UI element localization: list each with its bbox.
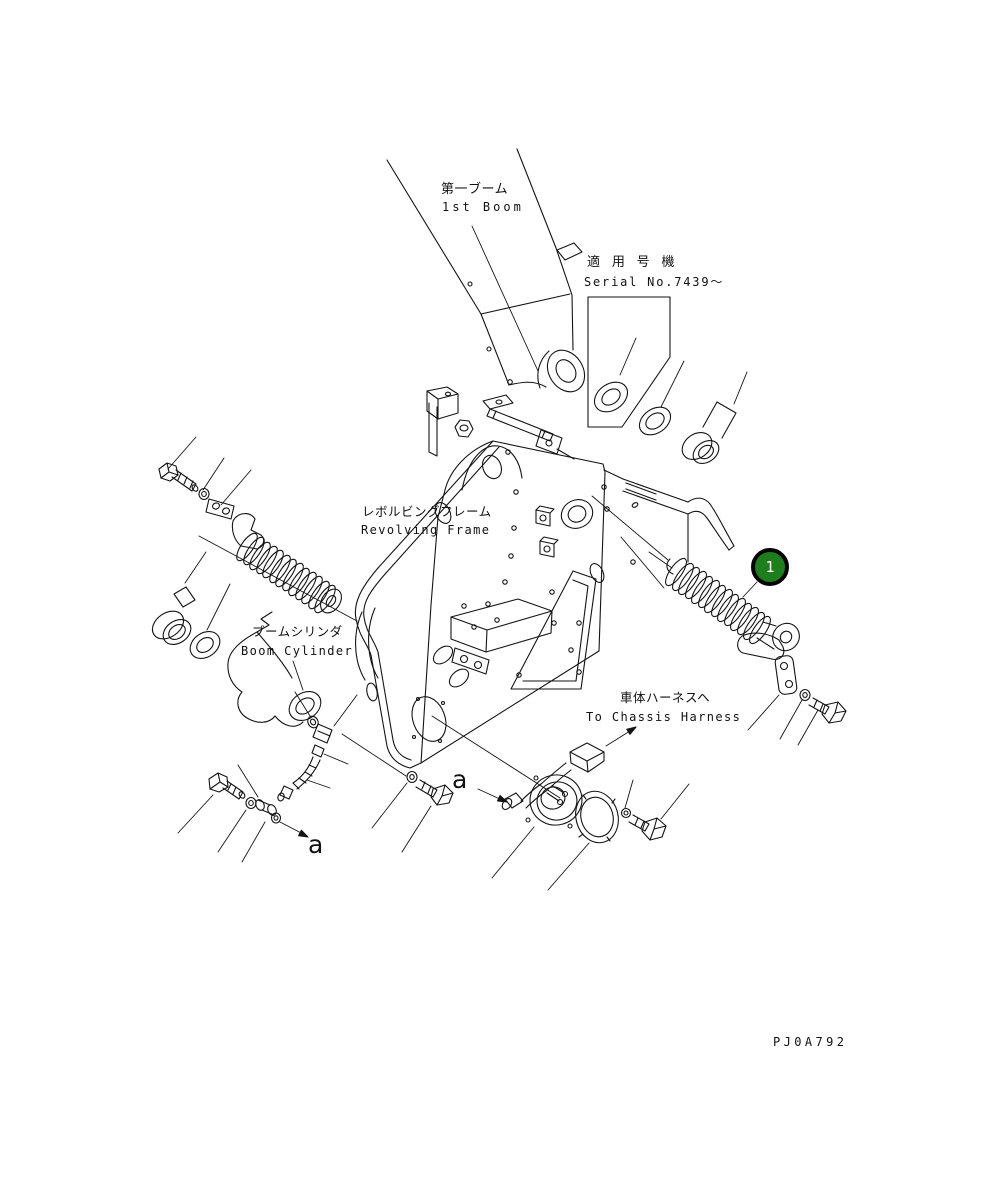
- label-revolving-frame-en: Revolving Frame: [361, 524, 490, 538]
- diagram-line-art: [0, 0, 995, 1201]
- label-1st-boom-en: 1st Boom: [442, 201, 524, 215]
- part-callout-1[interactable]: 1: [751, 548, 789, 586]
- label-chassis-harness-en: To Chassis Harness: [586, 711, 741, 725]
- left-bushing-washers: [147, 552, 230, 664]
- label-serial-en: Serial No.7439〜: [584, 276, 724, 290]
- serial-applicability-group: [588, 297, 747, 468]
- parts-diagram-page: 第一ブーム 1st Boom 適 用 号 機 Serial No.7439〜 レ…: [0, 0, 995, 1201]
- top-bracket-assembly: [427, 387, 574, 459]
- revolving-frame-outline: [355, 441, 734, 798]
- label-serial-jp: 適 用 号 機: [587, 256, 676, 271]
- label-chassis-harness-jp: 車体ハーネスヘ: [620, 691, 710, 705]
- left-spring-pin-assembly: [159, 437, 357, 621]
- grease-hose-assembly: [178, 692, 357, 862]
- label-1st-boom-jp: 第一ブーム: [441, 183, 508, 198]
- label-boom-cylinder-jp: ブームシリンダ: [252, 625, 343, 639]
- harness-cover-assembly: [478, 727, 689, 890]
- label-revolving-frame-jp: レボルビングフレーム: [362, 505, 492, 519]
- view-arrow-label-a-left: a: [308, 831, 323, 860]
- drawing-code: PJ0A792: [773, 1036, 847, 1050]
- part-callout-1-number: 1: [765, 558, 774, 576]
- view-arrow-label-a-center: a: [452, 766, 467, 795]
- label-boom-cylinder-en: Boom Cylinder: [241, 645, 353, 659]
